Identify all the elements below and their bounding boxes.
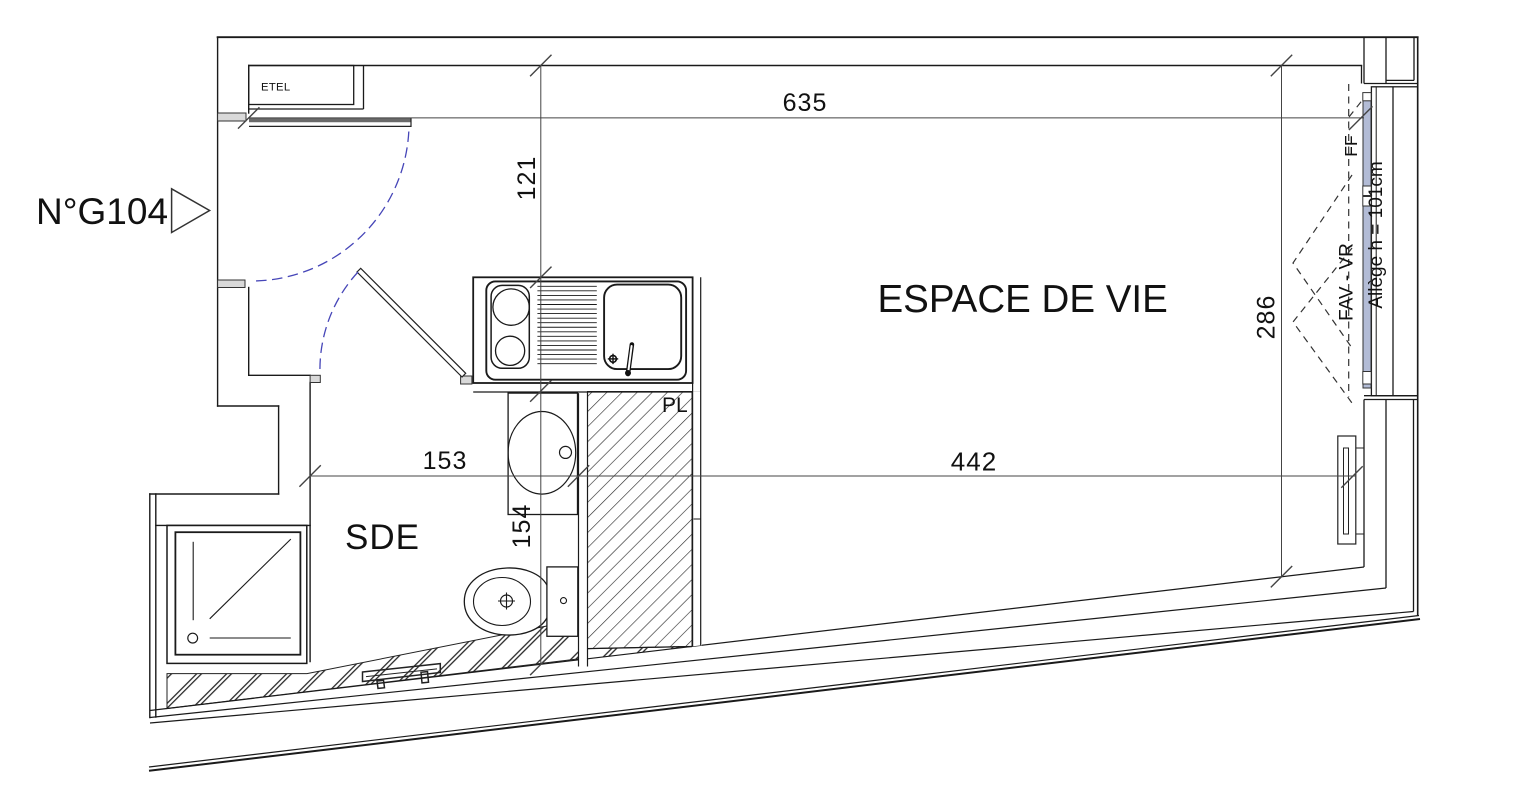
svg-text:153: 153 [423, 447, 468, 475]
svg-text:ESPACE DE VIE: ESPACE DE VIE [878, 278, 1168, 321]
svg-text:PL: PL [662, 394, 688, 417]
svg-text:121: 121 [513, 156, 541, 201]
svg-text:635: 635 [783, 89, 828, 117]
svg-text:442: 442 [951, 447, 997, 477]
svg-text:FAV - VR: FAV - VR [1337, 243, 1358, 321]
svg-text:FF: FF [1341, 135, 1361, 156]
svg-text:SDE: SDE [345, 518, 420, 557]
svg-text:ETEL: ETEL [261, 82, 290, 94]
svg-text:Allège h = 101cm: Allège h = 101cm [1366, 161, 1387, 308]
svg-text:286: 286 [1253, 295, 1281, 340]
svg-text:154: 154 [508, 504, 536, 549]
svg-text:N°G104: N°G104 [36, 191, 168, 232]
